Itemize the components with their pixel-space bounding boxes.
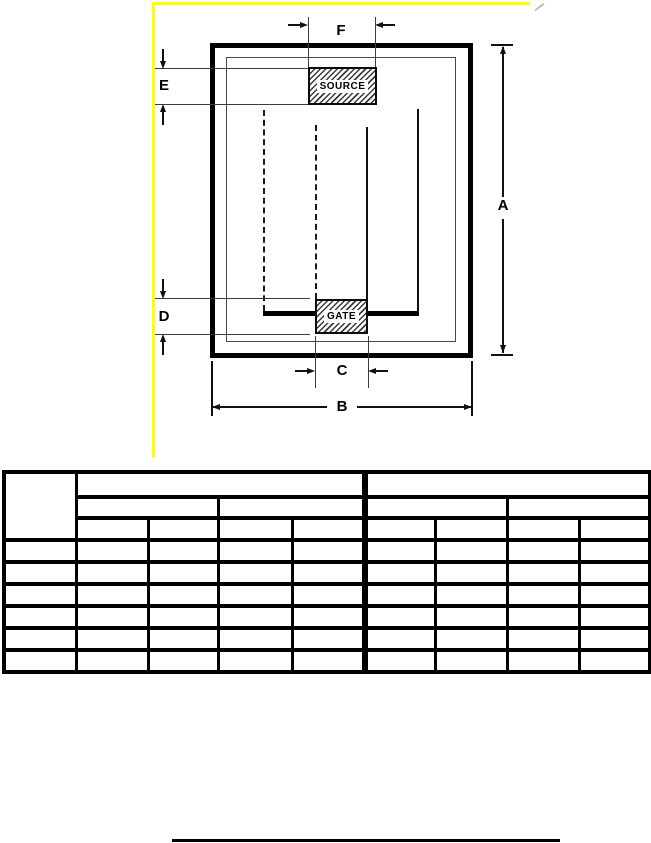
- dim-d-arrow-down-icon: [160, 291, 166, 299]
- table-data-row: [4, 540, 650, 562]
- table-cell: [435, 540, 507, 562]
- dim-a-arrow-down-icon: [500, 345, 506, 353]
- table-cell: [148, 584, 218, 606]
- table-subgroup-header-cell: [365, 497, 507, 518]
- table-cell: [148, 628, 218, 650]
- dim-b-arrow-left-icon: [212, 404, 220, 410]
- dim-c-arrow-left-icon: [307, 368, 315, 374]
- table-cell: [435, 650, 507, 672]
- highlight-line-top: [152, 2, 530, 5]
- gate-finger-line-4: [417, 109, 419, 311]
- table-column-header-cell: [218, 518, 292, 540]
- table-column-header-cell: [365, 518, 435, 540]
- table-cell: [218, 584, 292, 606]
- dim-a-label: A: [492, 197, 514, 214]
- table-cell: [507, 584, 579, 606]
- dim-c-tail-left: [295, 370, 307, 372]
- table-cell: [507, 540, 579, 562]
- dim-e-arrow-up-icon: [160, 104, 166, 112]
- dim-f-ext-left: [308, 17, 309, 67]
- highlight-line-left: [152, 2, 155, 458]
- table-header-row-1: [4, 472, 650, 497]
- table-cell: [579, 628, 650, 650]
- gate-finger-line-1: [263, 110, 265, 311]
- table-cell: [365, 606, 435, 628]
- dim-d-arrow-up-icon: [160, 334, 166, 342]
- table-cell: [507, 606, 579, 628]
- table-cell: [218, 540, 292, 562]
- table-cell: [579, 562, 650, 584]
- dim-e-label: E: [153, 77, 175, 94]
- dim-a-line-lower: [502, 219, 504, 353]
- table-subgroup-header-cell: [76, 497, 218, 518]
- table-cell: [76, 628, 148, 650]
- dim-b-label: B: [331, 398, 353, 415]
- table-cell: [435, 584, 507, 606]
- table-cell: [4, 540, 76, 562]
- table-cell: [292, 628, 365, 650]
- table-data-row: [4, 584, 650, 606]
- dim-f-tail-left: [288, 24, 300, 26]
- table-data-row: [4, 606, 650, 628]
- table-cell: [579, 650, 650, 672]
- table-cell: [218, 650, 292, 672]
- table-column-header-cell: [435, 518, 507, 540]
- table-cell: [292, 540, 365, 562]
- table-cell: [579, 540, 650, 562]
- table-subgroup-header-cell: [507, 497, 650, 518]
- dim-f-arrow-right-icon: [375, 22, 383, 28]
- table-cell: [4, 650, 76, 672]
- dim-c-ext-left: [315, 336, 316, 388]
- table-column-header-cell: [76, 518, 148, 540]
- table-column-header-cell: [579, 518, 650, 540]
- dim-a-line-upper: [502, 47, 504, 197]
- table-header-row-3: [4, 518, 650, 540]
- table-cell: [76, 584, 148, 606]
- dim-b-arrow-right-icon: [464, 404, 472, 410]
- table-cell: [76, 540, 148, 562]
- gate-pad-label: GATE: [324, 310, 359, 323]
- table-cell: [365, 540, 435, 562]
- dim-c-tail-right: [376, 370, 388, 372]
- table-cell: [218, 628, 292, 650]
- table-data-body: [4, 540, 650, 672]
- dim-e-ext-bottom: [155, 104, 308, 105]
- table-cell: [365, 628, 435, 650]
- dim-a-arrow-up-icon: [500, 46, 506, 54]
- table-subgroup-header-cell: [218, 497, 365, 518]
- table-cell: [4, 628, 76, 650]
- table-cell: [148, 606, 218, 628]
- dim-d-tail-bottom: [162, 342, 164, 355]
- table-cell: [507, 562, 579, 584]
- table-group-header-cell: [76, 472, 365, 497]
- table-cell: [292, 584, 365, 606]
- gate-finger-line-2: [315, 125, 317, 299]
- table-group-header-cell: [365, 472, 650, 497]
- table-cell: [148, 650, 218, 672]
- table-data-row: [4, 650, 650, 672]
- gate-pad: GATE: [315, 299, 368, 334]
- dim-e-ext-top: [155, 68, 308, 69]
- table-cell: [76, 562, 148, 584]
- gate-bus-bar-left: [263, 311, 315, 316]
- table-cell: [292, 606, 365, 628]
- table-cell: [4, 562, 76, 584]
- dim-f-tail-right: [383, 24, 395, 26]
- table-column-header-cell: [148, 518, 218, 540]
- table-cell: [507, 650, 579, 672]
- table-column-header-cell: [507, 518, 579, 540]
- table-corner-cell: [4, 472, 76, 540]
- scan-smudge: [535, 3, 545, 11]
- die-dimension-table: [2, 470, 651, 674]
- table-cell: [579, 584, 650, 606]
- dim-e-arrow-down-icon: [160, 61, 166, 69]
- source-pad: SOURCE: [308, 67, 377, 105]
- dim-d-ext-top: [155, 298, 310, 299]
- table-cell: [579, 606, 650, 628]
- dim-d-ext-bottom: [155, 334, 310, 335]
- dim-d-label: D: [153, 308, 175, 325]
- dim-b-line-right: [357, 406, 472, 408]
- table-cell: [4, 606, 76, 628]
- table-cell: [148, 562, 218, 584]
- table-data-row: [4, 562, 650, 584]
- gate-finger-line-3: [366, 127, 368, 299]
- dim-f-arrow-left-icon: [300, 22, 308, 28]
- table-header-body: [4, 472, 650, 540]
- table-cell: [4, 584, 76, 606]
- table-header-row-2: [4, 497, 650, 518]
- dim-b-line-left: [213, 406, 327, 408]
- dim-e-tail-bottom: [162, 112, 164, 125]
- dim-f-label: F: [330, 22, 352, 39]
- source-pad-label: SOURCE: [317, 80, 369, 93]
- table-cell: [292, 650, 365, 672]
- dim-a-cap-bottom: [491, 354, 513, 356]
- table-cell: [76, 606, 148, 628]
- dim-c-arrow-right-icon: [368, 368, 376, 374]
- table-cell: [365, 650, 435, 672]
- gate-bus-bar-right: [368, 311, 419, 316]
- table-cell: [435, 562, 507, 584]
- table-cell: [435, 606, 507, 628]
- table-cell: [435, 628, 507, 650]
- table-cell: [365, 584, 435, 606]
- table-cell: [292, 562, 365, 584]
- table-data-row: [4, 628, 650, 650]
- table-cell: [507, 628, 579, 650]
- datasheet-page: F E A D SOURCE GATE C B: [0, 0, 651, 843]
- table-column-header-cell: [292, 518, 365, 540]
- table-cell: [218, 606, 292, 628]
- table-cell: [365, 562, 435, 584]
- footer-rule: [172, 839, 560, 842]
- dim-c-ext-right: [368, 336, 369, 388]
- table-cell: [218, 562, 292, 584]
- dim-c-label: C: [331, 362, 353, 379]
- table-cell: [148, 540, 218, 562]
- table-cell: [76, 650, 148, 672]
